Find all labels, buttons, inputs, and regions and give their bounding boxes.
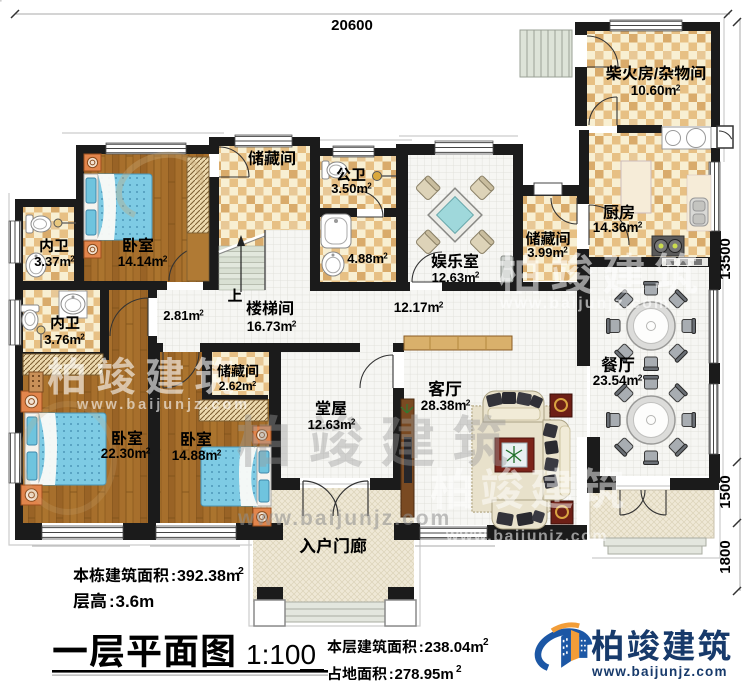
svg-text:3.6m: 3.6m xyxy=(116,592,155,611)
svg-text:2: 2 xyxy=(475,270,480,279)
svg-text:392.38m: 392.38m xyxy=(177,568,240,585)
svg-text:2: 2 xyxy=(80,332,85,341)
svg-text:14.36m: 14.36m xyxy=(593,220,639,235)
svg-text:2: 2 xyxy=(483,637,489,648)
svg-text:22.30m: 22.30m xyxy=(101,446,147,461)
svg-text:2.81m: 2.81m xyxy=(163,308,200,323)
svg-text:2: 2 xyxy=(439,299,444,309)
svg-text:12.63m: 12.63m xyxy=(432,270,476,285)
svg-text:238.04m: 238.04m xyxy=(425,639,484,656)
svg-text:2: 2 xyxy=(292,318,297,328)
svg-text:2: 2 xyxy=(146,445,151,455)
svg-text:2: 2 xyxy=(466,397,471,407)
svg-text:2: 2 xyxy=(238,565,244,577)
svg-text:3.50m: 3.50m xyxy=(331,181,368,196)
svg-text:3.99m: 3.99m xyxy=(527,245,564,260)
svg-text:2: 2 xyxy=(563,245,568,254)
svg-text:1800: 1800 xyxy=(717,540,734,573)
svg-text:2: 2 xyxy=(163,253,168,263)
svg-text:2: 2 xyxy=(252,379,256,388)
svg-text:2: 2 xyxy=(638,372,643,382)
svg-text:12.17m: 12.17m xyxy=(394,300,440,315)
svg-text:2: 2 xyxy=(70,254,75,263)
svg-text:2: 2 xyxy=(638,219,643,229)
svg-text:2: 2 xyxy=(217,447,222,457)
svg-text:www.baijunjz.com: www.baijunjz.com xyxy=(591,664,728,679)
svg-text::: : xyxy=(109,592,115,611)
svg-text:278.95m: 278.95m xyxy=(395,666,454,683)
svg-text:1:100: 1:100 xyxy=(246,639,316,670)
svg-text:16.73m: 16.73m xyxy=(247,319,293,334)
svg-text:20600: 20600 xyxy=(331,17,373,34)
svg-text:10.60m: 10.60m xyxy=(631,83,677,98)
svg-text:www.baijunjz.com: www.baijunjz.com xyxy=(499,295,670,312)
svg-text:23.54m: 23.54m xyxy=(593,373,639,388)
svg-text::: : xyxy=(171,568,176,585)
svg-text:3.37m: 3.37m xyxy=(34,254,71,269)
svg-text:14.88m: 14.88m xyxy=(172,448,218,463)
svg-text:28.38m: 28.38m xyxy=(421,398,467,413)
svg-text:www.baijunjz.com: www.baijunjz.com xyxy=(237,507,451,530)
svg-text:4.88m: 4.88m xyxy=(347,251,384,266)
svg-text:2.62m: 2.62m xyxy=(219,379,253,393)
svg-text:/: / xyxy=(654,66,659,83)
svg-text:3.76m: 3.76m xyxy=(44,332,81,347)
svg-text::: : xyxy=(389,666,394,683)
svg-text:2: 2 xyxy=(199,308,204,317)
svg-text:13500: 13500 xyxy=(717,238,734,280)
svg-text::: : xyxy=(419,639,424,656)
svg-text:1500: 1500 xyxy=(717,475,734,508)
svg-text:2: 2 xyxy=(351,417,356,426)
svg-text:2: 2 xyxy=(456,664,462,675)
svg-text:2: 2 xyxy=(676,82,681,92)
svg-text:2: 2 xyxy=(383,251,388,260)
svg-text:14.14m: 14.14m xyxy=(118,254,164,269)
svg-text:www.baijunjz.com: www.baijunjz.com xyxy=(445,528,608,545)
svg-text:www.baijunjz.com: www.baijunjz.com xyxy=(76,397,250,413)
svg-text:2: 2 xyxy=(367,181,372,190)
svg-text:12.63m: 12.63m xyxy=(308,417,352,432)
